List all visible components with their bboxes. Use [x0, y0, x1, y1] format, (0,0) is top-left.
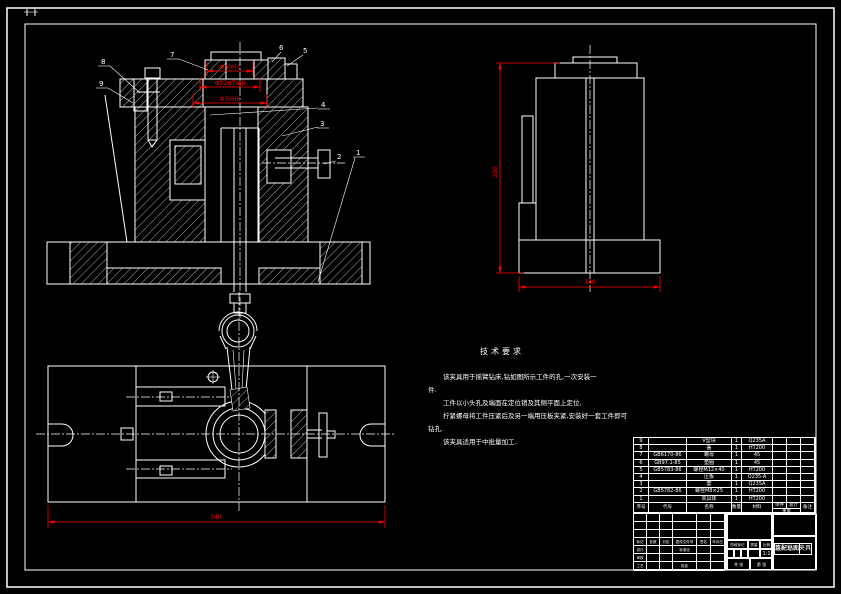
dim-label-phi40: Φ40H7: [220, 64, 241, 71]
titleblock-cell: [634, 530, 647, 538]
titleblock-label-stage-mark: 阶段标记: [727, 540, 748, 549]
bom-cell-single: [773, 460, 787, 467]
bom-cell-code: GB5783-86: [649, 467, 687, 474]
titleblock-cell: [673, 554, 697, 562]
titleblock-cell: [660, 514, 673, 522]
titleblock-cell: [711, 522, 725, 530]
titleblock-cell: [660, 522, 673, 530]
bom-cell-single: [773, 474, 787, 481]
bom-cell-name: V型块: [687, 438, 732, 445]
titleblock-cell: [711, 546, 725, 554]
balloon-6: 6: [279, 44, 284, 52]
side-dimensions: 230 140: [492, 63, 660, 292]
titleblock-cell: [660, 554, 673, 562]
titleblock-label-zone: 分区: [660, 538, 673, 546]
bom-cell-no: 9: [634, 438, 649, 445]
bom-cell-name: 垫圈: [687, 460, 732, 467]
titleblock-label-check: 审核: [634, 554, 647, 562]
titleblock-cell: [697, 530, 711, 538]
titleblock-cell: [697, 554, 711, 562]
tech-requirement-line: 工件以小头孔及端面在定位销及其侧平面上定位,: [428, 397, 653, 410]
bom-cell-no: 1: [634, 496, 649, 503]
bom-cell-single: [773, 488, 787, 495]
bom-cell-remark: [801, 474, 815, 481]
titleblock-stage-box: [727, 549, 734, 558]
title-block-right: 连杆钻孔夹具 装配总图: [772, 513, 816, 570]
titleblock-cell: [711, 530, 725, 538]
titleblock-label-mass: 质量: [748, 540, 760, 549]
bom-cell-name: 压板: [687, 474, 732, 481]
bom-cell-remark: [801, 445, 815, 452]
side-view: [519, 45, 660, 292]
bom-cell-qty: 1: [732, 474, 742, 481]
bom-cell-total: [787, 481, 801, 488]
titleblock-company-cell: [773, 514, 817, 536]
bom-cell-single: [773, 496, 787, 503]
titleblock-sheets: 共 张: [727, 558, 750, 570]
bom-cell-remark: [801, 467, 815, 474]
bom-cell-material: Q235-A: [742, 474, 773, 481]
bom-cell-single: [773, 467, 787, 474]
titleblock-cell: [697, 522, 711, 530]
bom-cell-no: 8: [634, 445, 649, 452]
bom-cell-code: GB6170-86: [649, 452, 687, 459]
titleblock-cell: [673, 522, 697, 530]
tech-requirements-title: 技术要求: [480, 346, 653, 357]
bom-cell-material: Q235A: [742, 438, 773, 445]
bom-header-weight-single: 单件: [773, 503, 787, 508]
bom-cell-remark: [801, 488, 815, 495]
bom-cell-material: HT200: [742, 488, 773, 495]
bom-cell-single: [773, 452, 787, 459]
bom-cell-code: [649, 496, 687, 503]
balloon-2: 2: [337, 153, 341, 161]
bom-cell-qty: 1: [732, 496, 742, 503]
bom-cell-total: [787, 438, 801, 445]
bom-cell-qty: 1: [732, 438, 742, 445]
balloon-5: 5: [303, 47, 307, 55]
titleblock-cell: [647, 554, 660, 562]
bom-cell-remark: [801, 460, 815, 467]
tech-requirement-line: 件.: [428, 384, 653, 397]
bom-cell-single: [773, 445, 787, 452]
bom-cell-qty: 1: [732, 445, 742, 452]
bom-cell-name: 套: [687, 481, 732, 488]
bom-cell-remark: [801, 452, 815, 459]
titleblock-label-sign: 签名: [697, 538, 711, 546]
titleblock-cell: [634, 522, 647, 530]
titleblock-sheet-no: 第 张: [750, 558, 773, 570]
bom-cell-material: HT200: [742, 467, 773, 474]
titleblock-cell: [647, 522, 660, 530]
titleblock-label-design: 设计: [634, 546, 647, 554]
bom-cell-single: [773, 438, 787, 445]
dim-label-plan-width: 340: [210, 514, 222, 521]
bom-cell-total: [787, 460, 801, 467]
dim-label-phi70: Φ70H6: [220, 96, 241, 103]
bom-table: 9 V型块 1 Q235A 8 盖 1 HT200 7 GB6170-86 螺母…: [633, 437, 816, 513]
drawing-title: 连杆钻孔夹具 装配总图: [773, 536, 817, 570]
bom-cell-code: GB97.1-85: [649, 460, 687, 467]
balloon-8: 8: [101, 58, 105, 66]
bom-cell-name: 螺母: [687, 452, 732, 459]
bom-cell-total: [787, 474, 801, 481]
bom-cell-qty: 1: [732, 467, 742, 474]
bom-cell-material: 45: [742, 452, 773, 459]
bom-cell-name: 螺栓M8×25: [687, 488, 732, 495]
bom-cell-qty: 1: [732, 452, 742, 459]
bom-cell-total: [787, 445, 801, 452]
bom-cell-total: [787, 488, 801, 495]
titleblock-cell: [711, 562, 725, 571]
bom-cell-code: [649, 445, 687, 452]
titleblock-cell: [647, 546, 660, 554]
bom-cell-no: 7: [634, 452, 649, 459]
bom-cell-remark: [801, 438, 815, 445]
titleblock-label-standardize: 标准化: [673, 546, 697, 554]
bom-cell-material: HT200: [742, 445, 773, 452]
titleblock-mass-value: [748, 549, 760, 558]
titleblock-label-count: 处数: [647, 538, 660, 546]
front-view: [47, 42, 370, 318]
titleblock-stage-box: [741, 549, 748, 558]
balloon-4: 4: [321, 101, 326, 109]
titleblock-cell: [697, 562, 711, 571]
bom-cell-material: HT200: [742, 496, 773, 503]
titleblock-cell: [660, 546, 673, 554]
bom-cell-code: GB5782-86: [649, 488, 687, 495]
titleblock-label-mark: 标记: [634, 538, 647, 546]
bom-cell-material: Q235A: [742, 481, 773, 488]
dim-label-height: 230: [492, 166, 499, 178]
bom-cell-total: [787, 496, 801, 503]
bom-cell-code: [649, 474, 687, 481]
titleblock-cell: [697, 514, 711, 522]
bom-cell-single: [773, 481, 787, 488]
balloon-7: 7: [170, 51, 174, 59]
technical-requirements: 技术要求 该夹具用于摇臂钻床,钻如图所示工件的孔,一次安装一 件. 工件以小头孔…: [428, 346, 653, 449]
titleblock-cell: [660, 562, 673, 571]
bom-cell-remark: [801, 481, 815, 488]
balloon-3: 3: [320, 120, 324, 128]
bom-cell-no: 4: [634, 474, 649, 481]
balloon-9: 9: [99, 80, 103, 88]
bom-cell-name: 夹具体: [687, 496, 732, 503]
bom-cell-no: 3: [634, 481, 649, 488]
titleblock-stage-box: [734, 549, 741, 558]
bom-cell-remark: [801, 496, 815, 503]
titleblock-label-approve: 批准: [673, 562, 697, 571]
titleblock-cell: [660, 530, 673, 538]
bom-cell-no: 2: [634, 488, 649, 495]
dim-label-phi52: Φ52H7/g6: [215, 80, 246, 87]
bom-cell-no: 5: [634, 467, 649, 474]
titleblock-cell: [711, 554, 725, 562]
titleblock-label-process: 工艺: [634, 562, 647, 571]
titleblock-label-change-no: 更改文件号: [673, 538, 697, 546]
titleblock-cell: [711, 514, 725, 522]
bom-cell-qty: 1: [732, 488, 742, 495]
titleblock-cell: [673, 514, 697, 522]
bom-cell-name: 螺栓M12×40: [687, 467, 732, 474]
titleblock-cell: [697, 546, 711, 554]
plan-dimensions: 340: [48, 505, 385, 528]
titleblock-cell: [647, 530, 660, 538]
titleblock-cell: [634, 514, 647, 522]
bom-cell-qty: 1: [732, 460, 742, 467]
tech-requirement-line: 拧紧螺母将工件压紧后及另一端用压板夹紧,安装好一套工件即可: [428, 410, 653, 423]
titleblock-cell: [673, 530, 697, 538]
drawing-title-line2: 装配总图: [774, 543, 800, 555]
bom-cell-code: [649, 481, 687, 488]
titleblock-label-date: 年月日: [711, 538, 725, 546]
title-block-left: 标记 处数 分区 更改文件号 签名 年月日 设计 标准化 审核 工艺 批准: [633, 513, 726, 570]
dim-label-width: 140: [584, 279, 596, 286]
plan-view: [36, 292, 396, 512]
titleblock-cell: [647, 562, 660, 571]
titleblock-code-cell: [727, 514, 773, 540]
tech-requirement-line: 钻孔.: [428, 423, 653, 436]
bom-cell-total: [787, 467, 801, 474]
bom-header-weight-total: 总计: [787, 503, 800, 508]
titleblock-cell: [647, 514, 660, 522]
balloon-1: 1: [356, 149, 360, 157]
bom-cell-material: 45: [742, 460, 773, 467]
bom-cell-qty: 1: [732, 481, 742, 488]
tech-requirement-line: 该夹具用于摇臂钻床,钻如图所示工件的孔,一次安装一: [428, 371, 653, 384]
tech-requirement-line: 该夹具适用于中批量加工.: [428, 436, 653, 449]
bom-cell-name: 盖: [687, 445, 732, 452]
bom-cell-no: 6: [634, 460, 649, 467]
bom-cell-total: [787, 452, 801, 459]
bom-cell-code: [649, 438, 687, 445]
title-block-middle: 阶段标记 质量 比例 1:1 共 张 第 张: [726, 513, 772, 570]
